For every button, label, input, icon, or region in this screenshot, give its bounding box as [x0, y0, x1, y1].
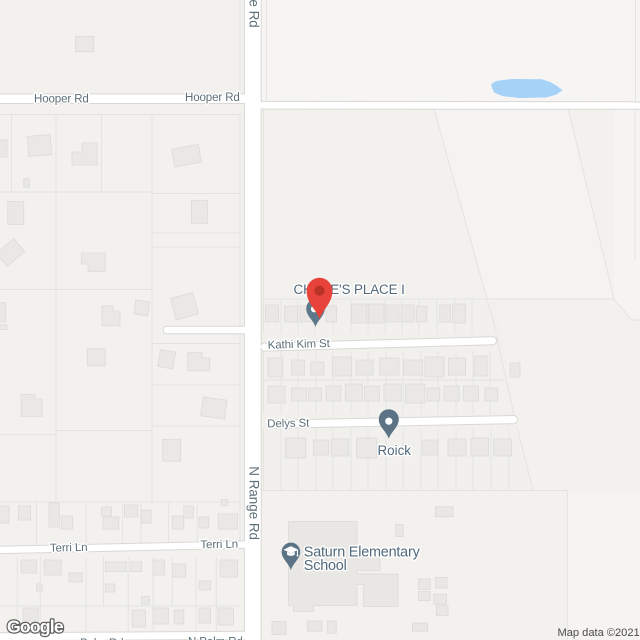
svg-text:Terri Ln: Terri Ln — [200, 539, 238, 552]
svg-text:Google: Google — [7, 616, 64, 636]
svg-text:Hooper Rd: Hooper Rd — [185, 92, 240, 104]
svg-text:Terri Ln: Terri Ln — [50, 542, 88, 555]
svg-text:N Palm Rd: N Palm Rd — [188, 636, 243, 640]
svg-text:Kathi Kim St: Kathi Kim St — [268, 338, 331, 352]
svg-text:Delys St: Delys St — [267, 418, 310, 431]
svg-text:N Range Rd: N Range Rd — [246, 0, 261, 28]
svg-text:School: School — [304, 558, 347, 574]
svg-text:N Range Rd: N Range Rd — [246, 466, 261, 540]
svg-text:Hooper Rd: Hooper Rd — [34, 93, 89, 105]
svg-text:Map data ©2021: Map data ©2021 — [558, 627, 640, 639]
svg-text:Roick: Roick — [378, 443, 412, 458]
